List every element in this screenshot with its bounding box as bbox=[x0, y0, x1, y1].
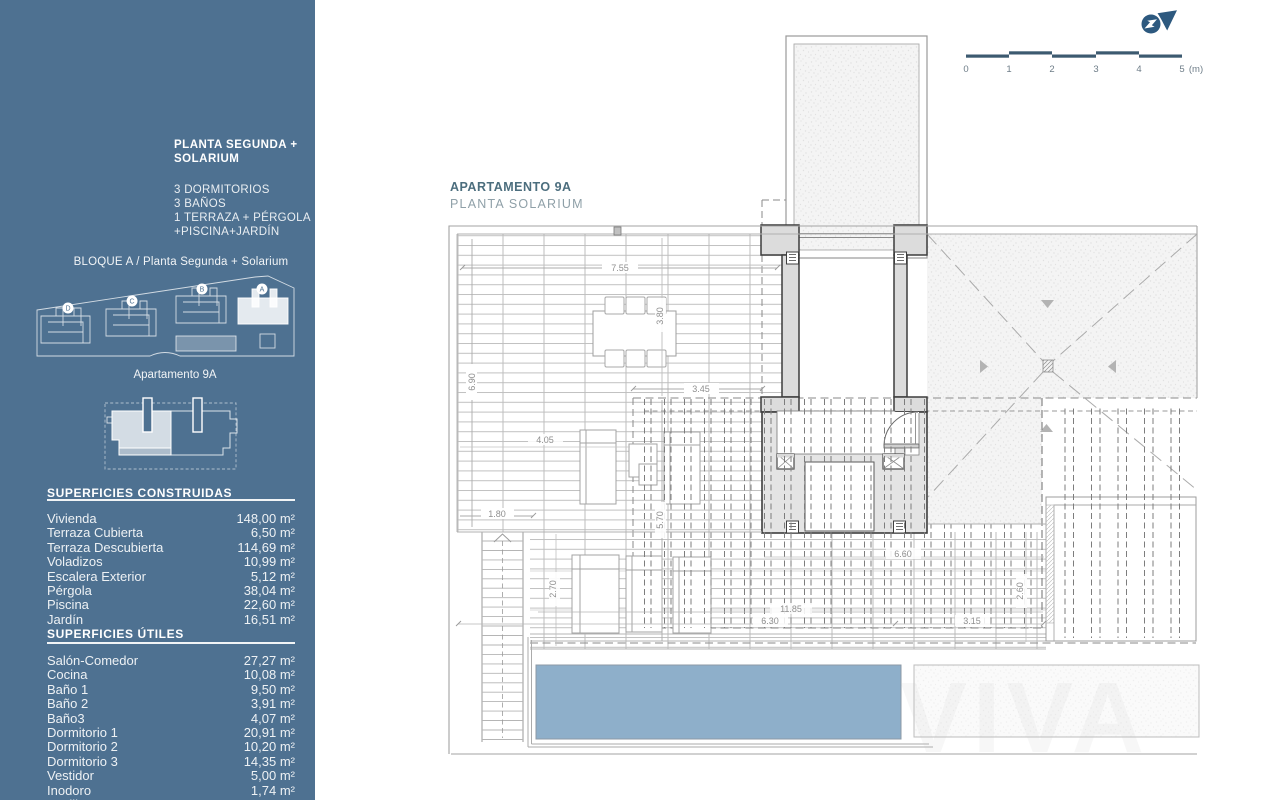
svg-text:2: 2 bbox=[1049, 64, 1054, 75]
svg-text:11.85: 11.85 bbox=[780, 604, 802, 614]
svg-text:2.60: 2.60 bbox=[1015, 582, 1025, 600]
svg-text:(m): (m) bbox=[1189, 64, 1203, 75]
svg-text:7.55: 7.55 bbox=[611, 263, 629, 273]
svg-text:6.60: 6.60 bbox=[894, 549, 912, 559]
svg-text:5.70: 5.70 bbox=[655, 511, 665, 529]
svg-text:4: 4 bbox=[1136, 64, 1141, 75]
svg-text:3.15: 3.15 bbox=[963, 616, 981, 626]
svg-text:1.80: 1.80 bbox=[488, 509, 506, 519]
svg-text:4.05: 4.05 bbox=[536, 435, 554, 445]
svg-text:5: 5 bbox=[1179, 64, 1184, 75]
svg-text:3.45: 3.45 bbox=[692, 384, 710, 394]
svg-text:0: 0 bbox=[963, 64, 968, 75]
svg-text:6.90: 6.90 bbox=[467, 373, 477, 391]
svg-text:VIVA: VIVA bbox=[900, 662, 1150, 774]
svg-text:3: 3 bbox=[1093, 64, 1098, 75]
svg-text:2.70: 2.70 bbox=[548, 580, 558, 598]
svg-text:1: 1 bbox=[1006, 64, 1011, 75]
svg-text:3.80: 3.80 bbox=[655, 307, 665, 325]
svg-text:6.30: 6.30 bbox=[761, 616, 779, 626]
